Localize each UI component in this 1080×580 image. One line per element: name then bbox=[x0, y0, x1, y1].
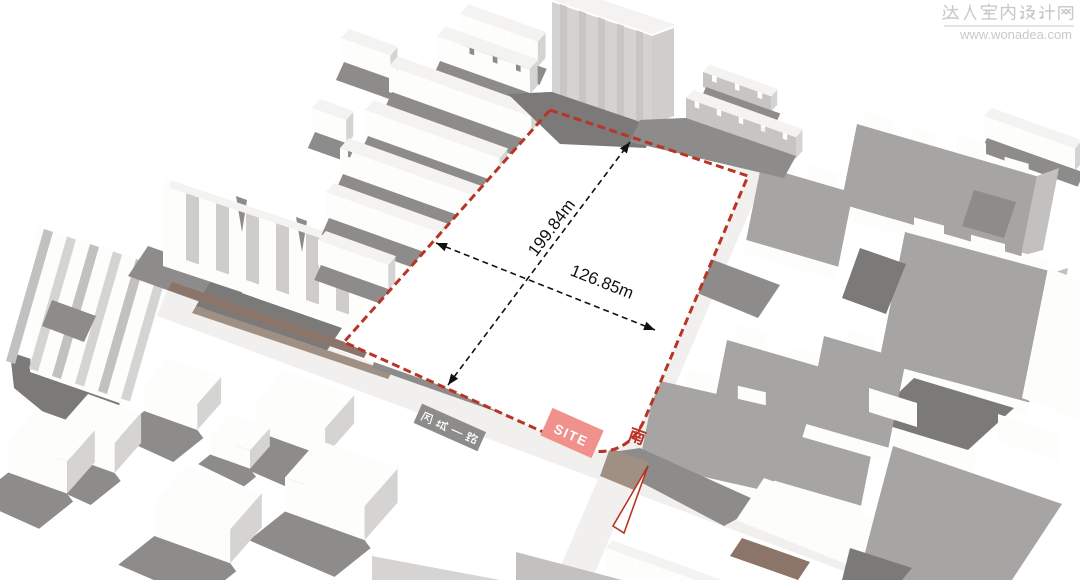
svg-text:www.wonadea.com: www.wonadea.com bbox=[959, 27, 1072, 42]
